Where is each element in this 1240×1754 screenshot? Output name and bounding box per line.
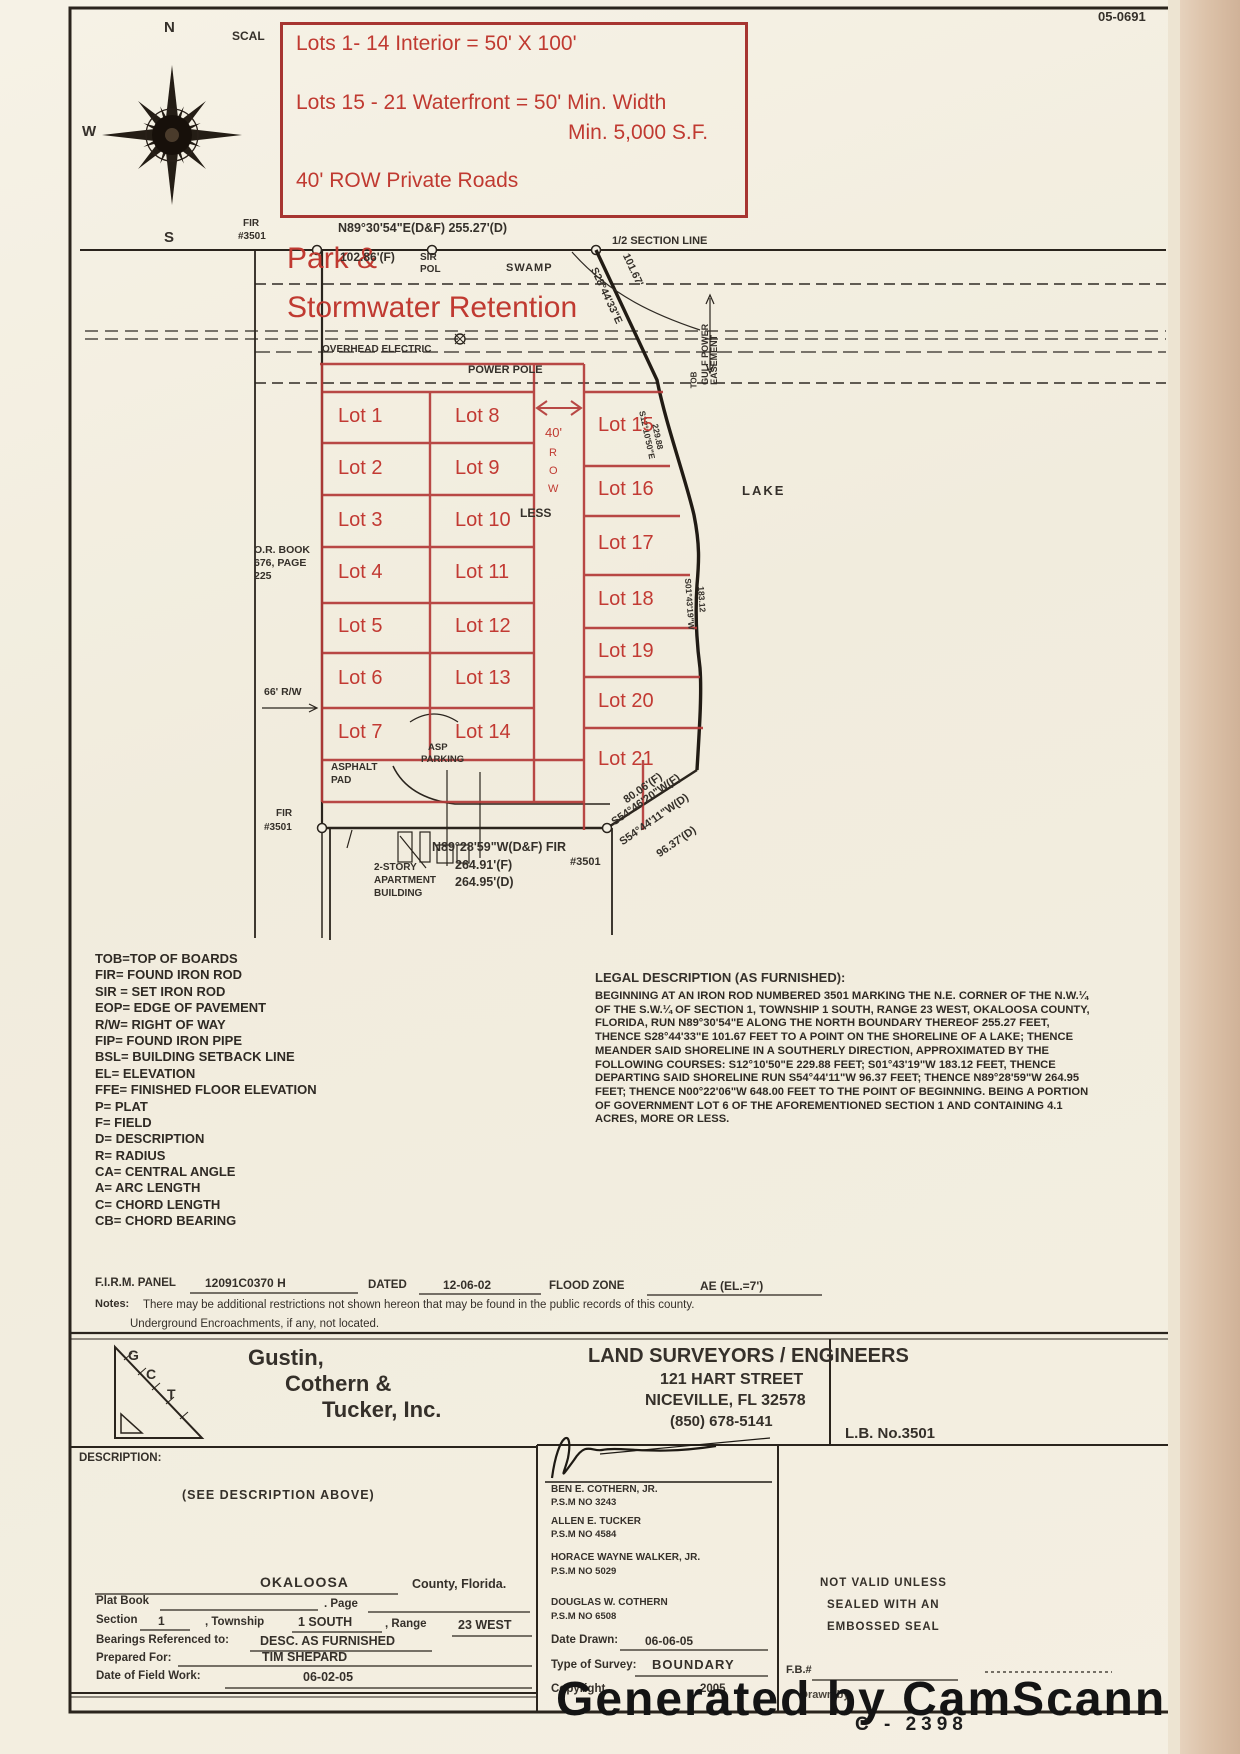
signer-name: DOUGLAS W. COTHERN — [551, 1598, 668, 1609]
lot-label-11: Lot 11 — [455, 561, 509, 584]
field-work-value: 06-02-05 — [303, 1671, 353, 1684]
legend-item: R/W= RIGHT OF WAY — [95, 1018, 317, 1034]
signer-number: P.S.M NO 3243 — [551, 1498, 616, 1508]
gulf-power-line-2: EASEMENT — [711, 324, 720, 385]
legend-item: D= DESCRIPTION — [95, 1132, 317, 1148]
or-book-line-1: O.R. BOOK — [254, 545, 310, 556]
legend-item: FIR= FOUND IRON ROD — [95, 968, 317, 984]
legend-item: FFE= FINISHED FLOOR ELEVATION — [95, 1083, 317, 1099]
lot-label-19: Lot 19 — [598, 640, 654, 663]
abbreviation-legend: TOB=TOP OF BOARDS FIR= FOUND IRON ROD SI… — [95, 952, 317, 1231]
signer-number: P.S.M NO 6508 — [551, 1612, 616, 1622]
company-street: 121 HART STREET — [660, 1372, 803, 1389]
signer-name: HORACE WAYNE WALKER, JR. — [551, 1553, 700, 1564]
notes-line-1: There may be additional restrictions not… — [143, 1299, 694, 1311]
lot-label-7: Lot 7 — [338, 721, 382, 744]
lot-label-12: Lot 12 — [455, 615, 511, 638]
logo-letter-c: C — [146, 1367, 156, 1382]
company-title: LAND SURVEYORS / ENGINEERS — [588, 1346, 909, 1367]
south-bearing: N89°28'59"W(D&F) FIR — [432, 841, 566, 854]
firm-panel-label: F.I.R.M. PANEL — [95, 1277, 176, 1289]
dist-264-field: 264.91'(F) — [455, 859, 512, 872]
see-description-above: (SEE DESCRIPTION ABOVE) — [182, 1489, 375, 1502]
legend-item: EOP= EDGE OF PAVEMENT — [95, 1001, 317, 1017]
asp-parking-2: PARKING — [421, 755, 464, 765]
logo-letter-g: G — [128, 1348, 139, 1363]
flood-zone-value: AE (EL.=7') — [700, 1280, 763, 1293]
notes-line-2: Underground Encroachments, if any, not l… — [130, 1318, 379, 1330]
dist-102: 102.86'(F) — [340, 251, 395, 264]
field-work-label: Date of Field Work: — [96, 1670, 201, 1682]
legend-item: FIP= FOUND IRON PIPE — [95, 1034, 317, 1050]
firm-dated-value: 12-06-02 — [443, 1279, 491, 1292]
company-phone: (850) 678-5141 — [670, 1414, 773, 1430]
firm-panel-value: 12091C0370 H — [205, 1277, 286, 1290]
date-drawn-value: 06-06-05 — [645, 1635, 693, 1648]
lot-label-4: Lot 4 — [338, 561, 382, 584]
page-border — [70, 8, 1170, 1712]
sir-label: SIR — [420, 253, 437, 264]
lot-label-16: Lot 16 — [598, 478, 654, 501]
company-name-3: Tucker, Inc. — [322, 1398, 441, 1421]
firm-dated-label: DATED — [368, 1279, 407, 1291]
compass-south-label: S — [164, 230, 174, 246]
legend-item: P= PLAT — [95, 1100, 317, 1116]
lot-label-8: Lot 8 — [455, 405, 499, 428]
legal-description-title: LEGAL DESCRIPTION (AS FURNISHED): — [595, 971, 845, 985]
company-name-2: Cothern & — [285, 1372, 391, 1395]
lot-label-10: Lot 10 — [455, 509, 511, 532]
doc-number: 05-0691 — [1098, 10, 1146, 24]
legend-item: BSL= BUILDING SETBACK LINE — [95, 1050, 317, 1066]
scale-label: SCAL — [232, 30, 265, 43]
lot-label-5: Lot 5 — [338, 615, 382, 638]
rw-66-label: 66' R/W — [264, 687, 302, 698]
legend-item: A= ARC LENGTH — [95, 1181, 317, 1197]
township-label: , Township — [205, 1616, 264, 1628]
signer-name: BEN E. COTHERN, JR. — [551, 1485, 658, 1496]
less-label: LESS — [520, 507, 551, 520]
lot-label-14: Lot 14 — [455, 721, 511, 744]
bearings-value: DESC. AS FURNISHED — [260, 1635, 395, 1648]
row-40-label: 40' — [545, 426, 562, 440]
annotation-line-1: Lots 1- 14 Interior = 50' X 100' — [296, 33, 577, 55]
bearings-label: Bearings Referenced to: — [96, 1634, 229, 1646]
flood-zone-label: FLOOD ZONE — [549, 1280, 624, 1292]
not-valid-line-1: NOT VALID UNLESS — [820, 1577, 947, 1589]
tob-label: TOB — [691, 372, 699, 389]
legend-item: TOB=TOP OF BOARDS — [95, 952, 317, 968]
pol-label: POL — [420, 265, 441, 276]
prepared-for-value: TIM SHEPARD — [262, 1651, 347, 1664]
or-book-line-3: 225 — [254, 571, 272, 582]
signer-number: P.S.M NO 4584 — [551, 1530, 616, 1540]
annotation-line-3: Min. 5,000 S.F. — [568, 122, 708, 144]
scanner-background — [1180, 0, 1240, 1754]
fir-top-number: #3501 — [238, 232, 266, 243]
section-value: 1 — [158, 1615, 165, 1628]
county-suffix: County, Florida. — [412, 1578, 506, 1591]
lot-label-9: Lot 9 — [455, 457, 499, 480]
lot-label-3: Lot 3 — [338, 509, 382, 532]
range-label: , Range — [385, 1618, 427, 1630]
asp-parking-1: ASP — [428, 743, 448, 753]
lot-label-18: Lot 18 — [598, 588, 654, 611]
north-bearing: N89°30'54"E(D&F) 255.27'(D) — [338, 222, 507, 235]
legend-item: F= FIELD — [95, 1116, 317, 1132]
section-label: Section — [96, 1614, 138, 1626]
apartment-line-2: APARTMENT — [374, 876, 436, 887]
compass-north-label: N — [164, 20, 175, 36]
notes-label: Notes: — [95, 1299, 129, 1311]
range-value: 23 WEST — [458, 1619, 512, 1632]
legend-item: C= CHORD LENGTH — [95, 1198, 317, 1214]
township-value: 1 SOUTH — [298, 1616, 352, 1629]
row-w: W — [548, 484, 558, 496]
date-drawn-label: Date Drawn: — [551, 1634, 618, 1646]
scanned-survey-plat: 05-0691 Lots 1- 14 Interior = 50' X 100'… — [0, 0, 1240, 1754]
page-label: . Page — [324, 1598, 358, 1610]
not-valid-line-2: SEALED WITH AN — [827, 1599, 940, 1611]
asphalt-label-2: PAD — [331, 776, 351, 787]
lot-label-17: Lot 17 — [598, 532, 654, 555]
prepared-for-label: Prepared For: — [96, 1652, 171, 1664]
lake-label: LAKE — [742, 484, 785, 498]
legend-item: CA= CENTRAL ANGLE — [95, 1165, 317, 1181]
lot-label-2: Lot 2 — [338, 457, 382, 480]
fir-se-number: #3501 — [570, 857, 601, 869]
county-value: OKALOOSA — [260, 1575, 349, 1590]
lot-label-20: Lot 20 — [598, 690, 654, 713]
not-valid-line-3: EMBOSSED SEAL — [827, 1621, 940, 1633]
half-section-line-label: 1/2 SECTION LINE — [612, 236, 707, 248]
or-book-line-2: 676, PAGE — [254, 558, 306, 569]
lot-label-13: Lot 13 — [455, 667, 511, 690]
lot-label-21: Lot 21 — [598, 748, 654, 771]
fir-sw-label: FIR — [276, 809, 292, 820]
compass-rose-icon — [102, 65, 242, 205]
fir-sw-number: #3501 — [264, 823, 292, 834]
apartment-line-3: BUILDING — [374, 889, 422, 900]
signer-number: P.S.M NO 5029 — [551, 1567, 616, 1577]
survey-type-value: BOUNDARY — [652, 1658, 735, 1672]
lot-label-15: Lot 15 — [598, 414, 654, 437]
gulf-power-label: GULF POWER EASEMENT — [701, 324, 720, 385]
legend-item: EL= ELEVATION — [95, 1067, 317, 1083]
compass-west-label: W — [82, 124, 96, 140]
description-label: DESCRIPTION: — [79, 1452, 161, 1464]
overhead-electric-label: OVERHEAD ELECTRIC — [322, 345, 431, 356]
annotation-line-4: 40' ROW Private Roads — [296, 170, 518, 192]
company-name-1: Gustin, — [248, 1346, 324, 1369]
logo-letter-t: T — [167, 1387, 176, 1402]
apartment-line-1: 2-STORY — [374, 863, 417, 874]
asphalt-label-1: ASPHALT — [331, 763, 377, 774]
signer-name: ALLEN E. TUCKER — [551, 1517, 641, 1528]
park-label-line-2: Stormwater Retention — [287, 292, 577, 324]
legend-item: CB= CHORD BEARING — [95, 1214, 317, 1230]
lot-label-1: Lot 1 — [338, 405, 382, 428]
swamp-label: SWAMP — [506, 263, 553, 275]
legend-item: R= RADIUS — [95, 1149, 317, 1165]
dist-264-desc: 264.95'(D) — [455, 876, 514, 889]
lot-label-6: Lot 6 — [338, 667, 382, 690]
legal-description-body: BEGINNING AT AN IRON ROD NUMBERED 3501 M… — [595, 990, 1155, 1127]
row-o: O — [549, 466, 558, 478]
dist-183: 183.12 — [696, 586, 707, 613]
fir-top-label: FIR — [243, 219, 259, 230]
legend-item: SIR = SET IRON ROD — [95, 985, 317, 1001]
lb-number: L.B. No.3501 — [845, 1426, 935, 1442]
survey-type-label: Type of Survey: — [551, 1659, 636, 1671]
company-city: NICEVILLE, FL 32578 — [645, 1393, 806, 1410]
plat-book-label: Plat Book — [96, 1595, 149, 1607]
row-r: R — [549, 448, 557, 460]
power-pole-label: POWER POLE — [468, 365, 543, 377]
annotation-line-2: Lots 15 - 21 Waterfront = 50' Min. Width — [296, 92, 666, 114]
footer-plan-number: C - 2398 — [855, 1714, 968, 1736]
